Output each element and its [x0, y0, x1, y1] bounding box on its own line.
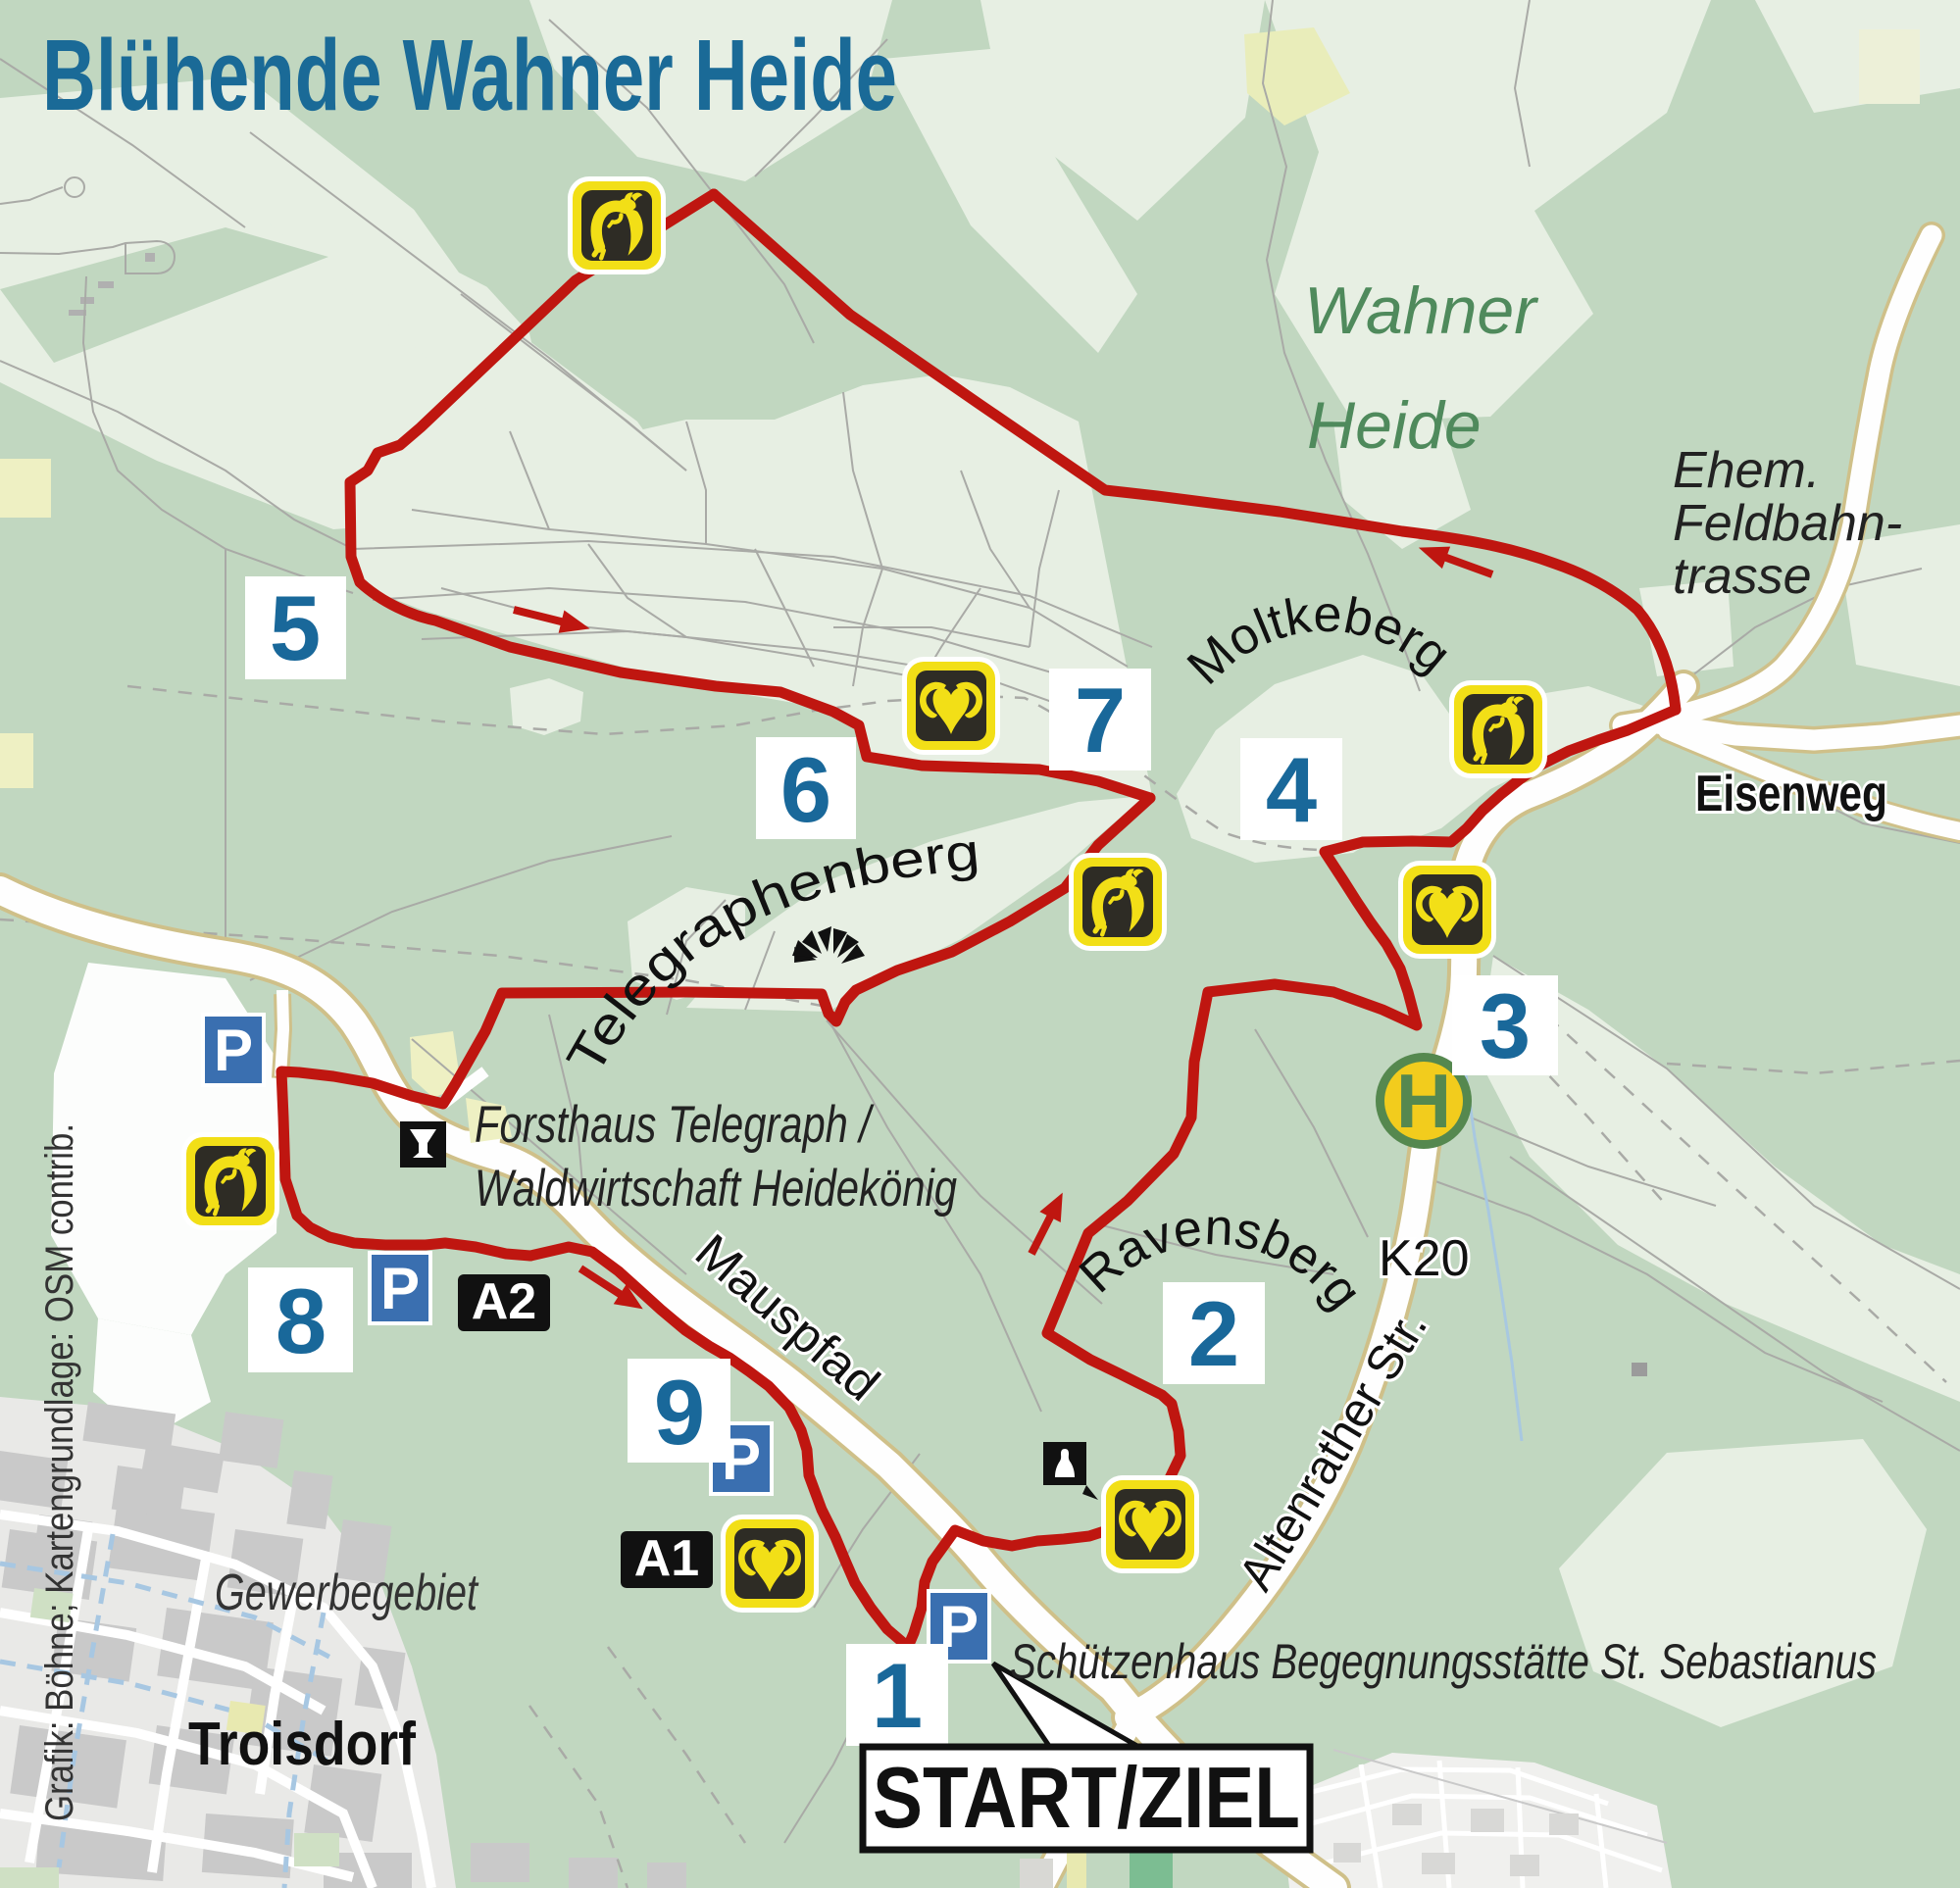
- svg-text:9: 9: [654, 1361, 705, 1464]
- svg-text:3: 3: [1480, 974, 1531, 1077]
- svg-text:Forsthaus Telegraph /: Forsthaus Telegraph /: [475, 1096, 875, 1154]
- svg-text:Grafik: Böhne; Kartengrundlage: Grafik: Böhne; Kartengrundlage: OSM cont…: [38, 1123, 81, 1821]
- svg-text:Schützenhaus Begegnungsstätte: Schützenhaus Begegnungsstätte St. Sebast…: [1010, 1634, 1877, 1689]
- svg-text:4: 4: [1266, 738, 1317, 841]
- svg-text:1: 1: [872, 1644, 923, 1747]
- svg-text:Heide: Heide: [1307, 388, 1482, 463]
- svg-text:5: 5: [270, 576, 321, 679]
- svg-text:K20: K20: [1379, 1230, 1470, 1287]
- svg-text:8: 8: [276, 1269, 327, 1372]
- svg-text:Feldbahn-: Feldbahn-: [1673, 495, 1902, 552]
- svg-text:A1: A1: [634, 1530, 699, 1587]
- svg-text:Waldwirtschaft Heidekönig: Waldwirtschaft Heidekönig: [475, 1160, 957, 1217]
- svg-text:Eisenweg: Eisenweg: [1695, 766, 1887, 822]
- svg-text:7: 7: [1075, 669, 1126, 771]
- svg-text:H: H: [1396, 1058, 1451, 1144]
- svg-text:START/ZIEL: START/ZIEL: [873, 1749, 1300, 1846]
- svg-text:Gewerbegebiet: Gewerbegebiet: [215, 1565, 479, 1621]
- svg-text:Ehem.: Ehem.: [1673, 442, 1820, 499]
- svg-text:2: 2: [1188, 1282, 1239, 1385]
- svg-text:A2: A2: [472, 1273, 536, 1330]
- svg-text:trasse: trasse: [1673, 548, 1812, 605]
- svg-text:Wahner: Wahner: [1304, 273, 1538, 348]
- svg-text:6: 6: [780, 738, 831, 841]
- svg-text:Troisdorf: Troisdorf: [188, 1711, 416, 1778]
- svg-text:Blühende Wahner Heide: Blühende Wahner Heide: [42, 19, 897, 131]
